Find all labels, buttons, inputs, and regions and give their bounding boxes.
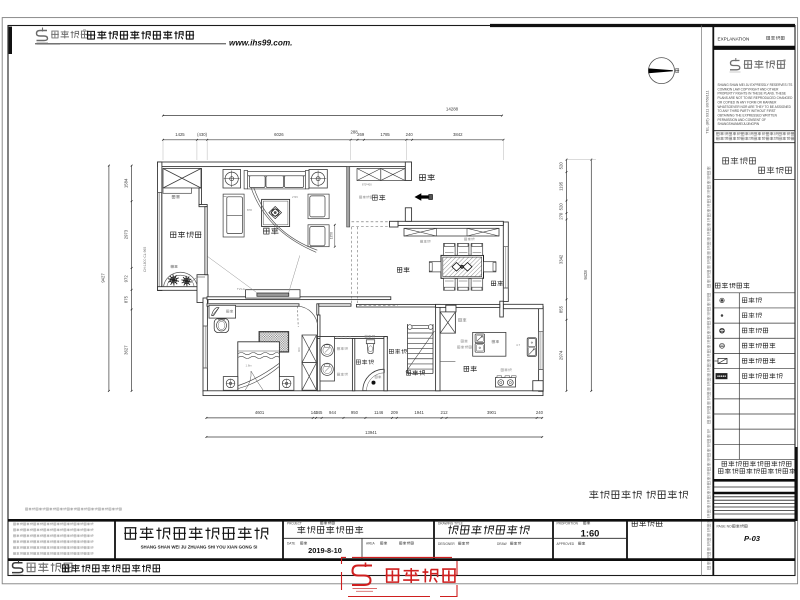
- svg-text:AREA: AREA: [366, 542, 376, 546]
- svg-text:B7R: B7R: [247, 208, 252, 212]
- svg-text:3342: 3342: [559, 254, 564, 264]
- svg-text:1785: 1785: [380, 132, 390, 137]
- svg-text:6026: 6026: [274, 132, 284, 137]
- svg-text:240: 240: [406, 132, 414, 137]
- svg-text::: :: [662, 522, 664, 529]
- svg-text:944: 944: [329, 410, 337, 415]
- svg-text:SHANG SHAN WEI JU ZHUANG SHI Y: SHANG SHAN WEI JU ZHUANG SHI YOU XIAN GO…: [141, 545, 258, 550]
- svg-text:245: 245: [315, 410, 323, 415]
- svg-text:855: 855: [559, 305, 564, 313]
- svg-text:1:60: 1:60: [581, 528, 600, 539]
- svg-text:3842: 3842: [453, 132, 463, 137]
- svg-text:9427: 9427: [101, 273, 106, 283]
- svg-text:1.8m: 1.8m: [246, 364, 253, 368]
- svg-text:972: 972: [124, 275, 129, 283]
- svg-text:870*400: 870*400: [362, 183, 372, 187]
- svg-text:3627: 3627: [124, 345, 129, 355]
- svg-text:1425: 1425: [175, 132, 185, 137]
- svg-text:2974: 2974: [559, 350, 564, 360]
- svg-text:209: 209: [391, 410, 399, 415]
- svg-text:SHANGSHANMEIJUJINGPIN: SHANGSHANMEIJUJINGPIN: [718, 122, 760, 126]
- svg-text:212: 212: [440, 410, 448, 415]
- svg-text:PAGE NO: PAGE NO: [717, 525, 733, 529]
- svg-text:600: 600: [297, 347, 301, 352]
- svg-text:1358: 1358: [330, 232, 334, 239]
- svg-text:P-03: P-03: [744, 534, 761, 543]
- svg-text:DRAWING TITLE: DRAWING TITLE: [438, 521, 463, 525]
- svg-text:2745: 2745: [292, 195, 298, 199]
- svg-text:TEL (86) 0311 80768111: TEL (86) 0311 80768111: [705, 90, 710, 134]
- svg-text:13941: 13941: [365, 430, 377, 435]
- svg-text:CH:1800 CL:965: CH:1800 CL:965: [143, 247, 147, 272]
- svg-text:269: 269: [357, 132, 365, 137]
- svg-text:2973: 2973: [124, 229, 129, 239]
- svg-text:EXPLANATION: EXPLANATION: [718, 37, 750, 42]
- svg-text:DESIGNER: DESIGNER: [438, 542, 455, 546]
- svg-text:270: 270: [559, 212, 564, 220]
- svg-text:DRAW: DRAW: [497, 542, 507, 546]
- svg-text:3901: 3901: [487, 410, 497, 415]
- svg-text:14288: 14288: [446, 107, 459, 112]
- svg-text:520: 520: [559, 162, 564, 170]
- svg-text:1941: 1941: [414, 410, 424, 415]
- svg-text:PROJECT: PROJECT: [287, 521, 302, 525]
- svg-text:1146: 1146: [374, 410, 384, 415]
- svg-text:(430): (430): [197, 132, 208, 137]
- svg-text:TV:LG: TV:LG: [237, 287, 245, 291]
- svg-text:950: 950: [351, 410, 359, 415]
- svg-text:1195: 1195: [559, 181, 564, 191]
- svg-text:PROPORTION: PROPORTION: [557, 521, 579, 525]
- svg-text:2019-8-10: 2019-8-10: [308, 546, 342, 555]
- svg-text:4601: 4601: [255, 410, 265, 415]
- svg-text:DATE: DATE: [287, 542, 295, 546]
- svg-text:4.7: 4.7: [516, 343, 521, 347]
- svg-text:APPROVED: APPROVED: [557, 542, 575, 546]
- svg-text:1584: 1584: [124, 178, 129, 188]
- svg-text:www.ihs99.com.: www.ihs99.com.: [229, 39, 292, 48]
- svg-text:875: 875: [124, 295, 129, 303]
- svg-text:240: 240: [536, 410, 544, 415]
- svg-text:9428: 9428: [583, 270, 588, 280]
- svg-text:520: 520: [559, 203, 564, 211]
